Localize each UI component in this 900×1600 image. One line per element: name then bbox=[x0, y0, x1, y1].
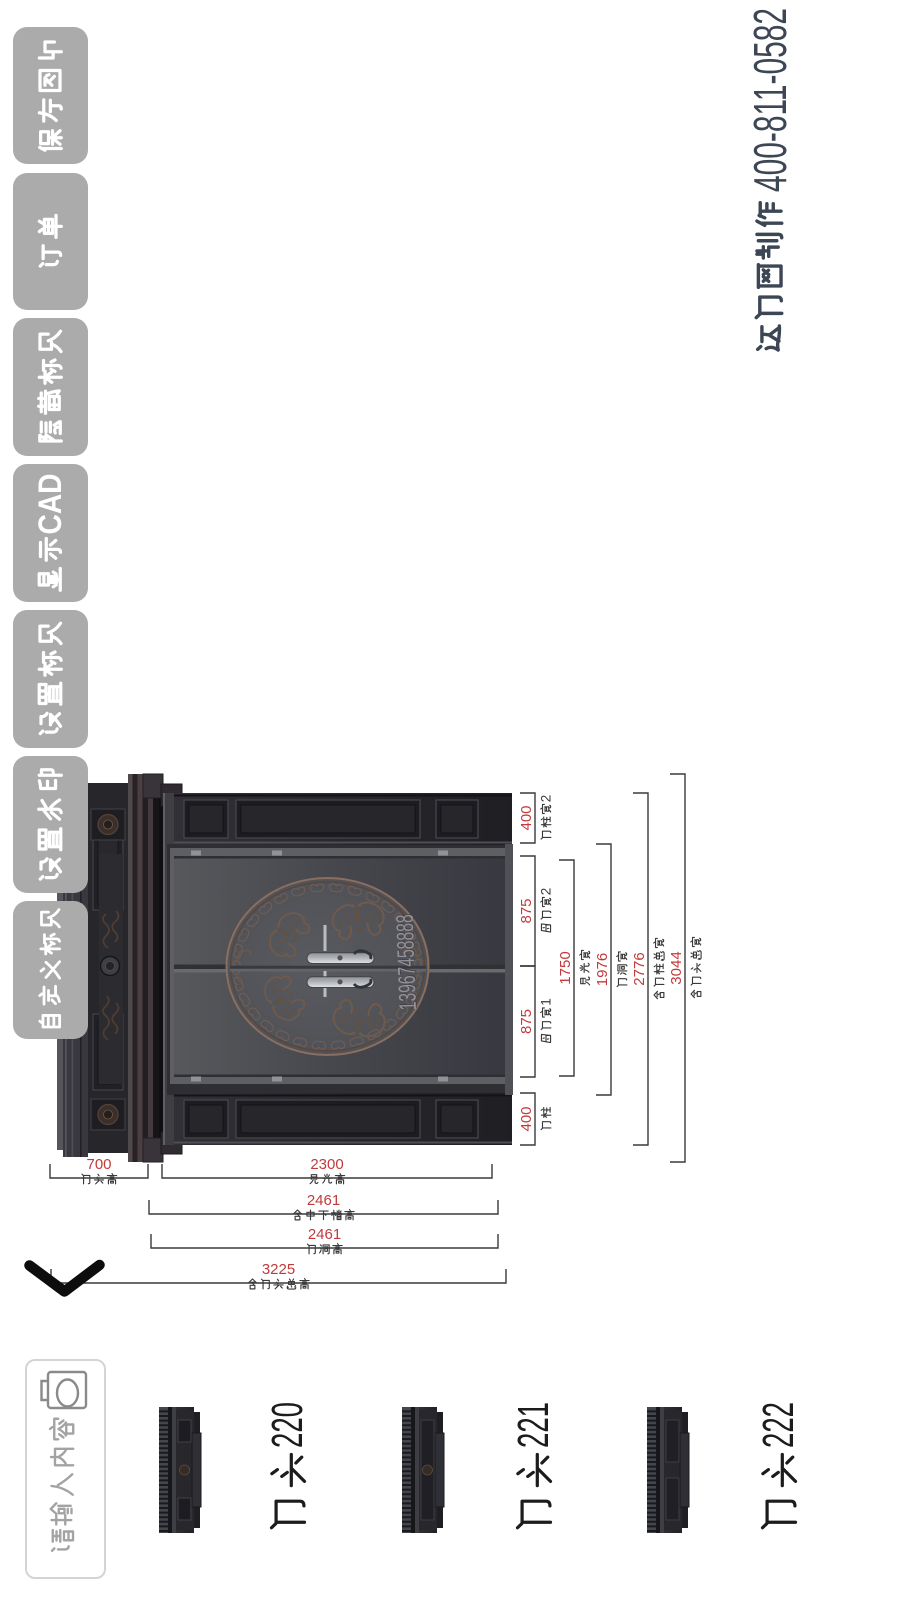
svg-text:875: 875 bbox=[518, 1009, 535, 1034]
svg-text:2461: 2461 bbox=[307, 1192, 340, 1209]
svg-text:CAD: CAD bbox=[32, 474, 68, 535]
svg-text:13967458888: 13967458888 bbox=[392, 914, 422, 1011]
svg-text:1750: 1750 bbox=[557, 951, 574, 984]
svg-text:3225: 3225 bbox=[262, 1261, 295, 1278]
svg-text:2: 2 bbox=[539, 888, 554, 896]
svg-text:2461: 2461 bbox=[308, 1226, 341, 1243]
svg-text:2: 2 bbox=[539, 795, 554, 803]
svg-text:400: 400 bbox=[518, 805, 535, 830]
svg-text:222: 222 bbox=[754, 1402, 803, 1448]
svg-text:221: 221 bbox=[509, 1402, 558, 1448]
svg-text:220: 220 bbox=[263, 1402, 312, 1448]
svg-text:700: 700 bbox=[86, 1156, 111, 1173]
svg-text:3044: 3044 bbox=[668, 951, 685, 984]
svg-text:2300: 2300 bbox=[310, 1156, 343, 1173]
svg-text:1976: 1976 bbox=[594, 953, 611, 986]
svg-text:875: 875 bbox=[518, 898, 535, 923]
svg-text:2776: 2776 bbox=[631, 952, 648, 985]
svg-text:1: 1 bbox=[539, 998, 554, 1006]
svg-text:400-811-0582: 400-811-0582 bbox=[744, 8, 796, 192]
svg-text:400: 400 bbox=[518, 1106, 535, 1131]
